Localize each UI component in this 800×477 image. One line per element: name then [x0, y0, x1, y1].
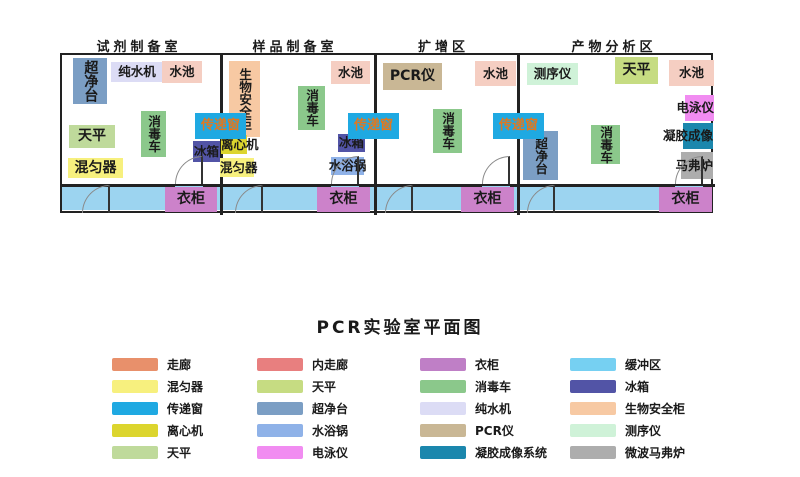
legend-swatch-inner-corridor — [257, 358, 303, 371]
equipment-sink-2: 水池 — [331, 61, 370, 84]
legend-label: 生物安全柜 — [625, 400, 685, 417]
inner-wall-segment — [62, 184, 175, 187]
inner-wall-segment — [203, 184, 331, 187]
equipment-wardrobe-3: 衣柜 — [461, 187, 514, 212]
room-title-reagent-prep: 试剂制备室 — [60, 36, 218, 51]
figure-title: PCR实验室平面图 — [0, 313, 800, 338]
legend-swatch-transfer-window — [112, 402, 158, 415]
equipment-pcr-machine: PCR仪 — [383, 63, 442, 90]
equipment-mixer-2: 混匀器 — [220, 158, 254, 177]
legend-item-mixer: 混匀器 — [112, 380, 203, 393]
equipment-wardrobe-1: 衣柜 — [165, 187, 217, 212]
legend-swatch-buffer-zone — [570, 358, 616, 371]
legend-item-transfer-window: 传递窗 — [112, 402, 203, 415]
legend-label: 混匀器 — [167, 378, 203, 395]
legend-label: 衣柜 — [475, 356, 499, 373]
legend-item-biosafety-cabinet: 生物安全柜 — [570, 402, 685, 415]
legend-item-microwave-muffle-furnace: 微波马弗炉 — [570, 446, 685, 459]
equipment-electrophoresis: 电泳仪 — [685, 95, 714, 121]
legend-swatch-balance-2 — [257, 380, 303, 393]
equipment-balance-2: 天平 — [615, 57, 658, 84]
legend-swatch-mixer — [112, 380, 158, 393]
legend-label: 传递窗 — [167, 400, 203, 417]
legend-label: 缓冲区 — [625, 356, 661, 373]
legend-label: 天平 — [312, 378, 336, 395]
legend-label: 超净台 — [312, 400, 348, 417]
equipment-clean-bench-1: 超净台 — [73, 58, 107, 104]
legend-item-sequencer: 测序仪 — [570, 424, 685, 437]
legend-item-pcr-machine: PCR仪 — [420, 424, 547, 437]
equipment-disinfection-cart-2: 消毒车 — [298, 86, 325, 130]
room-title-sample-prep: 样品制备室 — [218, 36, 372, 51]
legend-item-clean-bench: 超净台 — [257, 402, 348, 415]
equipment-water-purifier: 纯水机 — [111, 62, 163, 82]
legend-label: 走廊 — [167, 356, 191, 373]
equipment-transfer-window-2: 传递窗 — [348, 113, 399, 139]
legend-swatch-corridor — [112, 358, 158, 371]
legend-label: 电泳仪 — [312, 444, 348, 461]
legend-label: 内走廊 — [312, 356, 348, 373]
legend-column-1: 走廊 混匀器 传递窗 离心机 天平 — [112, 358, 203, 459]
equipment-sequencer: 测序仪 — [527, 63, 578, 85]
legend-label: 离心机 — [167, 422, 203, 439]
door-room-1 — [175, 156, 203, 184]
legend-item-buffer-zone: 缓冲区 — [570, 358, 685, 371]
legend-item-centrifuge: 离心机 — [112, 424, 203, 437]
legend-item-water-bath: 水浴锅 — [257, 424, 348, 437]
legend-item-corridor: 走廊 — [112, 358, 203, 371]
equipment-sink-4: 水池 — [669, 60, 714, 86]
equipment-balance-1: 天平 — [69, 125, 115, 148]
equipment-transfer-window-3: 传递窗 — [493, 113, 544, 139]
inner-wall-segment — [510, 184, 675, 187]
legend-label: 水浴锅 — [312, 422, 348, 439]
legend-item-disinfection-cart: 消毒车 — [420, 380, 547, 393]
legend-label: PCR仪 — [475, 422, 514, 439]
legend-swatch-gel-imaging-system — [420, 446, 466, 459]
legend-swatch-disinfection-cart — [420, 380, 466, 393]
equipment-wardrobe-2: 衣柜 — [317, 187, 370, 212]
equipment-sink-3: 水池 — [475, 61, 516, 86]
legend-label: 天平 — [167, 444, 191, 461]
door-room-3 — [482, 156, 510, 184]
room-title-amplification: 扩增区 — [372, 36, 515, 51]
legend-swatch-pcr-machine — [420, 424, 466, 437]
pcr-lab-floorplan-figure: 试剂制备室 样品制备室 扩增区 产物分析区 超净台 纯水机 水池 天平 消毒车 … — [0, 0, 800, 477]
legend-swatch-water-bath — [257, 424, 303, 437]
legend-item-balance-2: 天平 — [257, 380, 348, 393]
legend-label: 纯水机 — [475, 400, 511, 417]
legend-item-fridge: 冰箱 — [570, 380, 685, 393]
legend-swatch-centrifuge — [112, 424, 158, 437]
legend-label: 凝胶成像系统 — [475, 444, 547, 461]
equipment-wardrobe-4: 衣柜 — [659, 187, 712, 212]
legend-label: 冰箱 — [625, 378, 649, 395]
legend-swatch-sequencer — [570, 424, 616, 437]
legend-swatch-biosafety-cabinet — [570, 402, 616, 415]
floorplan-outline: 超净台 纯水机 水池 天平 消毒车 混匀器 冰箱 传递窗 生物安全柜 水池 消毒… — [60, 53, 713, 213]
legend-item-inner-corridor: 内走廊 — [257, 358, 348, 371]
equipment-disinfection-cart-1: 消毒车 — [141, 111, 166, 157]
equipment-gel-imaging: 凝胶成像 — [683, 123, 713, 149]
legend-column-2: 内走廊 天平 超净台 水浴锅 电泳仪 — [257, 358, 348, 459]
legend-label: 测序仪 — [625, 422, 661, 439]
room-title-product-analysis: 产物分析区 — [515, 36, 713, 51]
equipment-transfer-window-1: 传递窗 — [195, 113, 246, 139]
legend-swatch-clean-bench — [257, 402, 303, 415]
legend-item-wardrobe: 衣柜 — [420, 358, 547, 371]
legend-item-electrophoresis: 电泳仪 — [257, 446, 348, 459]
legend-item-balance: 天平 — [112, 446, 203, 459]
legend-item-water-purifier: 纯水机 — [420, 402, 547, 415]
legend-label: 消毒车 — [475, 378, 511, 395]
equipment-mixer-1: 混匀器 — [68, 158, 123, 178]
legend-swatch-fridge — [570, 380, 616, 393]
legend-item-gel-imaging-system: 凝胶成像系统 — [420, 446, 547, 459]
equipment-disinfection-cart-4: 消毒车 — [591, 125, 620, 164]
legend-label: 微波马弗炉 — [625, 444, 685, 461]
legend-swatch-balance — [112, 446, 158, 459]
legend-swatch-wardrobe — [420, 358, 466, 371]
legend-column-4: 缓冲区 冰箱 生物安全柜 测序仪 微波马弗炉 — [570, 358, 685, 459]
legend-column-3: 衣柜 消毒车 纯水机 PCR仪 凝胶成像系统 — [420, 358, 547, 459]
equipment-sink-1: 水池 — [162, 61, 202, 83]
equipment-disinfection-cart-3: 消毒车 — [433, 109, 462, 153]
legend-swatch-electrophoresis — [257, 446, 303, 459]
legend-swatch-water-purifier — [420, 402, 466, 415]
legend-swatch-microwave-muffle-furnace — [570, 446, 616, 459]
